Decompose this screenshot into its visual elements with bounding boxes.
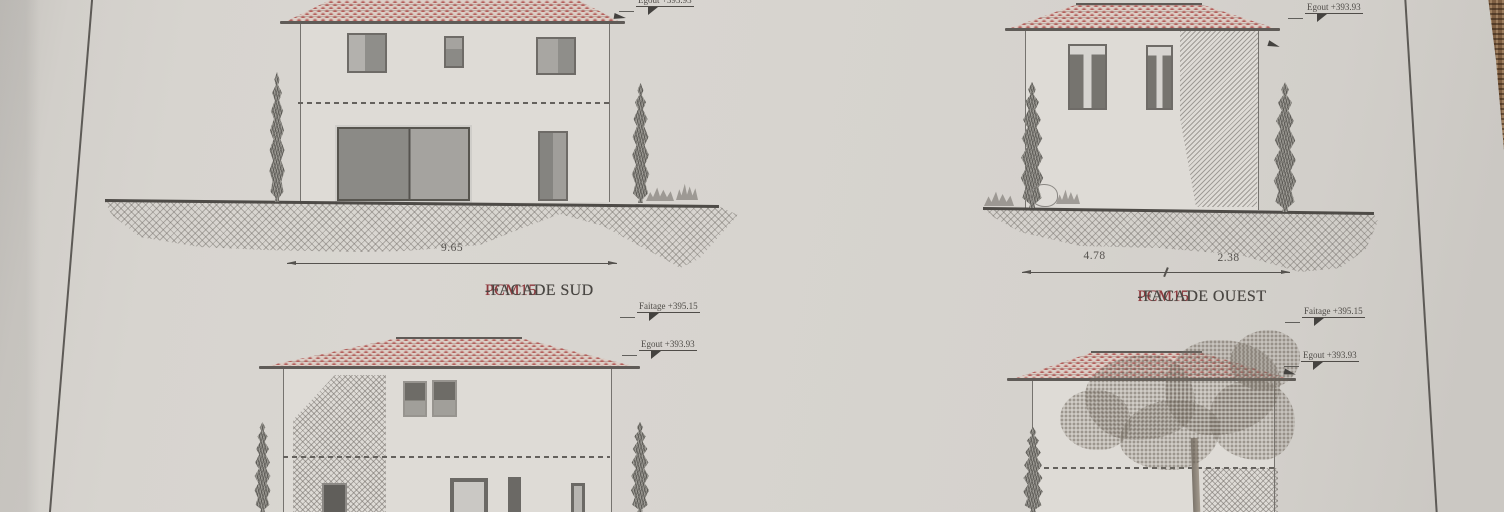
dimension-label: 9.65 (287, 242, 617, 254)
facade-sud-floor-line (298, 102, 610, 104)
facade-bottom-left-ridge-line (396, 337, 522, 339)
deciduous-tree-foliage (1060, 390, 1130, 450)
facade-ouest-shaded-wall-section (1180, 31, 1259, 207)
facade-ouest-window-right (1146, 45, 1173, 110)
level-marker-icon (1313, 362, 1323, 370)
facade-ouest-eaves-line (1005, 28, 1280, 31)
facade-sud-bay-window (337, 127, 470, 201)
deciduous-tree-foliage (1210, 380, 1295, 460)
facade-bottom-right-stone-section (1203, 468, 1278, 512)
dimension-label: 2.38 (1167, 252, 1290, 264)
level-marker-icon (1314, 318, 1324, 326)
facade-sud-eaves-line (280, 21, 625, 24)
facade-ouest-ridge-line (1076, 3, 1202, 5)
dimension-line-ouest: 4.78 2.38 (1022, 266, 1290, 282)
caption-facade-name: -FACADE OUEST (1138, 288, 1267, 306)
facade-sud-door (538, 131, 568, 201)
level-marker-icon (648, 7, 658, 15)
level-marker-icon (1317, 14, 1327, 22)
dimension-label: 4.78 (1022, 250, 1167, 262)
dimension-arrow-right (608, 261, 617, 265)
dimension-arrow-left (1022, 270, 1031, 274)
facade-sud-roof (283, 0, 622, 23)
dimension-arrow-right (1281, 270, 1290, 274)
facade-sud-window-left (347, 33, 387, 73)
facade-bottom-left-narrow-window (571, 483, 585, 512)
facade-bottom-left-door (450, 478, 488, 512)
facade-bottom-left-window-2 (432, 380, 457, 417)
facade-bottom-left-window-1 (403, 381, 427, 417)
facade-bottom-left-basement-window (322, 483, 347, 512)
caption-facade-name: -FACADE SUD (485, 282, 594, 300)
facade-bottom-left-eaves-line (259, 366, 640, 369)
dimension-arrow-left (287, 261, 296, 265)
facade-ouest-window-left (1068, 44, 1107, 110)
round-bush (1030, 184, 1058, 207)
facade-bottom-left-floor-line (283, 456, 610, 458)
level-marker-icon (649, 313, 659, 321)
dimension-line-sud-width: 9.65 (287, 257, 617, 273)
level-marker-icon (651, 351, 661, 359)
facade-sud-window-right (536, 37, 576, 75)
photographed-architectural-drawing: 9.65 PCM15-FACADE SUD Egout +393.93 4.78… (0, 0, 1504, 512)
facade-sud-window-small (444, 36, 464, 68)
facade-bottom-left-narrow-opening (508, 477, 521, 512)
